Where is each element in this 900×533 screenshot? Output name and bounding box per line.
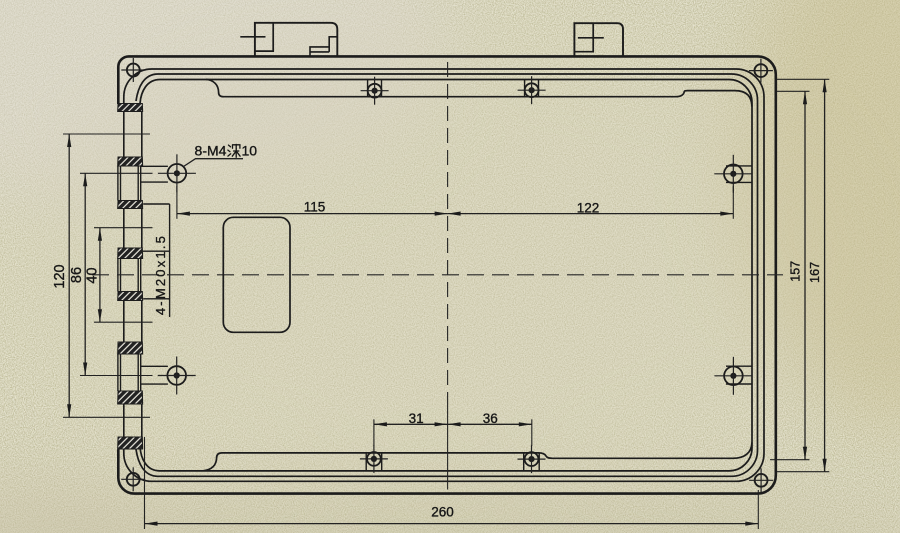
svg-text:10: 10 [242,143,258,159]
svg-text:122: 122 [577,200,600,215]
svg-text:4-M20x1.5: 4-M20x1.5 [153,234,168,315]
svg-text:167: 167 [808,262,822,283]
svg-text:31: 31 [409,411,424,426]
svg-text:115: 115 [304,199,326,214]
svg-text:157: 157 [789,261,803,282]
svg-text:36: 36 [483,411,498,426]
svg-text:40: 40 [85,267,101,283]
svg-text:260: 260 [431,505,454,520]
svg-text:120: 120 [52,264,68,288]
svg-text:8-M4: 8-M4 [195,143,227,159]
svg-text:86: 86 [69,267,85,283]
